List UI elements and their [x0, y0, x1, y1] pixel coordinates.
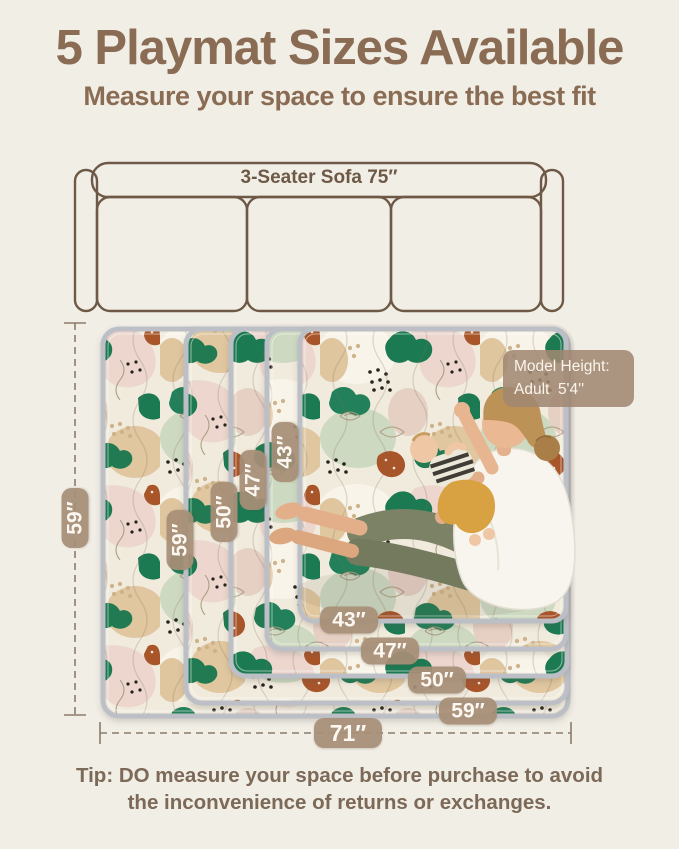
sofa-armrest-left	[75, 170, 97, 311]
sofa-armrest-right	[541, 170, 563, 311]
scene-illustration	[0, 0, 679, 849]
height-dimension-line	[64, 323, 86, 715]
sofa-seat-2	[247, 197, 391, 311]
sofa-outline	[75, 163, 563, 311]
sofa-seat-3	[391, 197, 541, 311]
width-dimension-line	[100, 722, 571, 744]
playmat-size-infographic: 5 Playmat Sizes Available Measure your s…	[0, 0, 679, 849]
sofa-seat-1	[97, 197, 247, 311]
sofa-backrest	[92, 163, 546, 197]
